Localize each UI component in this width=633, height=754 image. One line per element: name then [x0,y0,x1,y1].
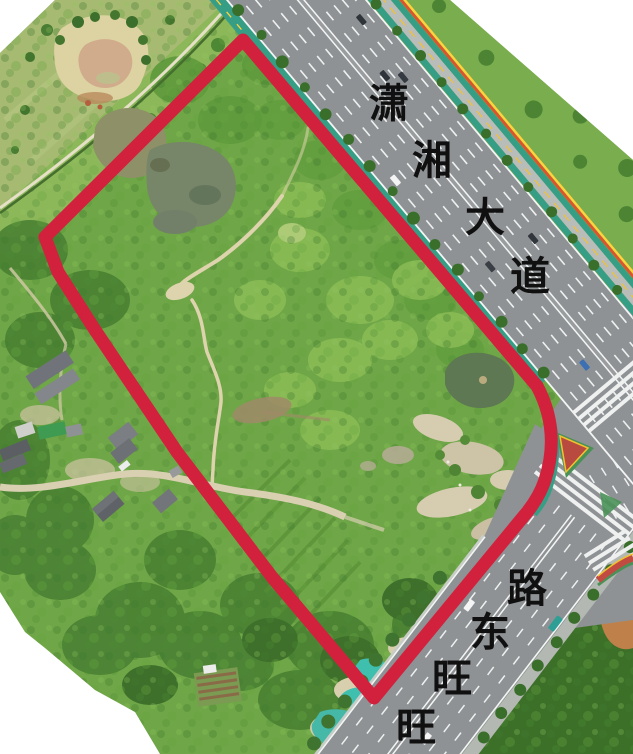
road-name-character: 大 [465,195,505,241]
aerial-orthophoto-map: 潇 湘 大 道 旺 旺 东 路 [0,0,633,754]
road-name-character: 道 [510,254,550,300]
rocky-patch [382,446,414,464]
rocky-patch-small [360,461,376,471]
road-name-character: 潇 [369,81,409,127]
road-name-character: 旺 [432,656,472,702]
road-name-character: 路 [507,566,548,612]
road-name-character: 湘 [412,138,452,184]
aerial-scene: 潇 湘 大 道 旺 旺 东 路 [0,0,633,754]
road-name-character: 旺 [396,705,436,751]
road-name-character: 东 [470,610,510,656]
